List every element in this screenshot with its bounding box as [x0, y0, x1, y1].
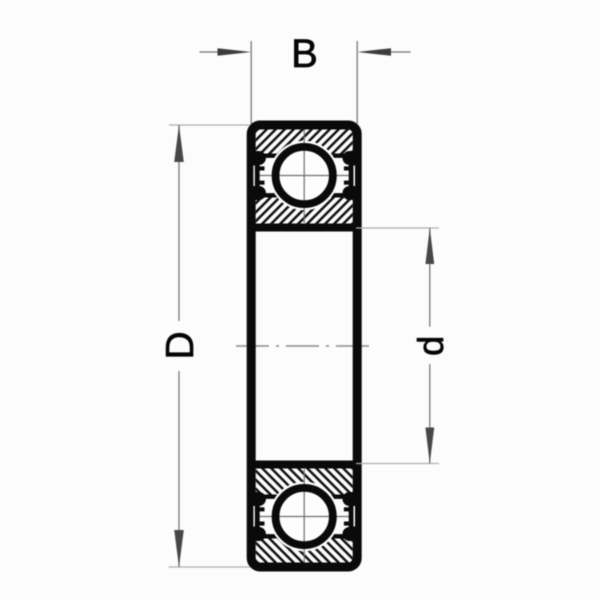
svg-text:B: B [291, 32, 318, 76]
svg-text:D: D [159, 331, 202, 359]
svg-text:d: d [410, 336, 451, 356]
